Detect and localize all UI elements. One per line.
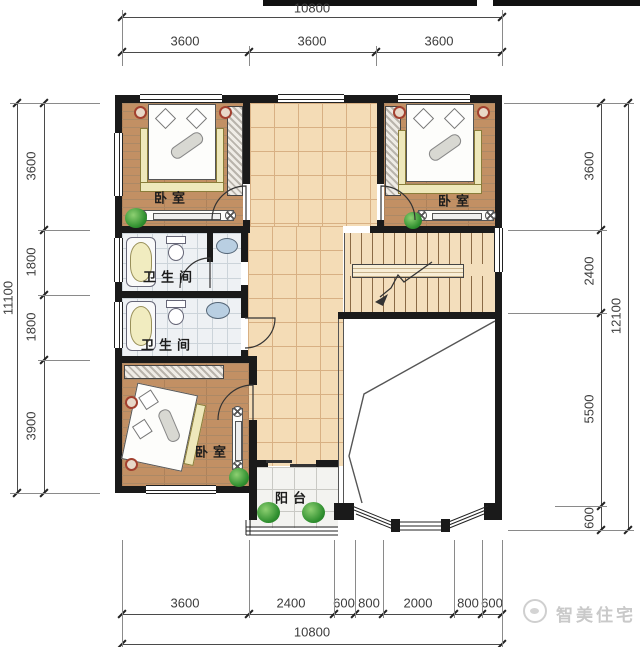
wall-bedroom1-right bbox=[243, 103, 250, 184]
window-bedroom1-west bbox=[114, 133, 123, 196]
blanket-roll bbox=[427, 132, 464, 163]
wall-balcony-top bbox=[316, 460, 338, 467]
dim-seg-right: 5500 bbox=[582, 395, 597, 424]
dim-extension bbox=[249, 540, 250, 618]
dim-extension bbox=[10, 493, 100, 494]
dim-extension bbox=[502, 540, 503, 647]
blanket-roll bbox=[157, 407, 182, 443]
dim-extension bbox=[502, 10, 503, 66]
dim-seg-top: 3600 bbox=[171, 34, 200, 49]
dim-extension bbox=[508, 313, 607, 314]
dim-line bbox=[17, 103, 18, 493]
wall-bedroom3-top bbox=[115, 356, 257, 363]
room-label-bedroom: 卧室 bbox=[195, 442, 231, 461]
plant bbox=[229, 468, 249, 487]
pillow bbox=[132, 419, 153, 440]
dim-seg-right: 2400 bbox=[582, 257, 597, 286]
dim-seg-right: 3600 bbox=[582, 152, 597, 181]
floor-plan-canvas: 卧室 卧室 卫生间 卫生间 卧室 阳台 10800 3600 3600 3600… bbox=[0, 0, 640, 647]
wall-row1-east bbox=[370, 226, 502, 233]
plant bbox=[404, 212, 422, 229]
wall-balcony-left bbox=[249, 467, 257, 520]
wall-bath1-inner bbox=[207, 233, 213, 262]
dim-total-right: 12100 bbox=[609, 298, 624, 334]
wardrobe bbox=[227, 106, 243, 196]
dresser bbox=[138, 210, 234, 221]
pillow bbox=[186, 108, 207, 129]
dim-total-left: 11100 bbox=[1, 281, 16, 315]
toilet bbox=[166, 236, 186, 244]
window-stairs-east bbox=[494, 228, 503, 272]
void-boundary-line bbox=[338, 319, 339, 503]
dresser-knob bbox=[225, 210, 236, 221]
dim-line bbox=[122, 17, 502, 18]
toilet bbox=[168, 244, 184, 261]
dim-seg-bottom: 2000 bbox=[404, 596, 433, 611]
bed-frame bbox=[398, 130, 406, 190]
dim-total-bottom: 10800 bbox=[294, 625, 330, 640]
blanket-roll bbox=[169, 130, 206, 161]
dim-extension bbox=[504, 103, 634, 104]
nightstand-lamp bbox=[125, 458, 138, 471]
dim-extension bbox=[508, 530, 634, 531]
room-label-bedroom: 卧室 bbox=[154, 188, 190, 207]
dresser bbox=[418, 210, 494, 221]
dim-seg-bottom: 800 bbox=[358, 596, 380, 611]
stair-treads-lower bbox=[350, 276, 490, 312]
dim-total-top: 10800 bbox=[294, 1, 330, 16]
bay-corner-left bbox=[334, 503, 354, 520]
nightstand-lamp bbox=[477, 106, 490, 119]
bed-frame bbox=[474, 130, 482, 190]
window-bedroom2-north bbox=[398, 94, 470, 103]
window-bedroom1-north bbox=[140, 94, 222, 103]
plant bbox=[125, 208, 147, 228]
room-label-bedroom: 卧室 bbox=[438, 191, 474, 210]
sink bbox=[206, 302, 230, 319]
dresser-knob bbox=[485, 210, 496, 221]
bay-window bbox=[352, 506, 398, 531]
dim-seg-left: 1800 bbox=[24, 313, 39, 342]
dim-extension bbox=[508, 230, 607, 231]
window-hall-north bbox=[278, 94, 344, 103]
hall-floor-lower bbox=[248, 226, 343, 466]
sink bbox=[216, 238, 238, 254]
dim-seg-left: 1800 bbox=[24, 248, 39, 277]
bed bbox=[406, 104, 474, 182]
nightstand-lamp bbox=[125, 396, 138, 409]
dim-seg-left: 3900 bbox=[24, 412, 39, 441]
dim-extension bbox=[122, 540, 123, 647]
toilet bbox=[168, 308, 184, 325]
dim-extension bbox=[38, 295, 90, 296]
brand-watermark: 智美住宅 bbox=[556, 601, 636, 626]
window-bath1-west bbox=[114, 238, 123, 282]
brand-logo-icon bbox=[523, 599, 547, 623]
dim-line bbox=[628, 103, 629, 530]
dim-seg-bottom: 2400 bbox=[277, 596, 306, 611]
toilet bbox=[166, 300, 186, 308]
dim-seg-top: 3600 bbox=[425, 34, 454, 49]
bed bbox=[148, 104, 216, 180]
dim-line bbox=[44, 103, 45, 493]
dresser-bar bbox=[235, 421, 242, 461]
balcony-sliding-door bbox=[266, 460, 292, 463]
dim-extension bbox=[383, 540, 384, 618]
nightstand-lamp bbox=[393, 106, 406, 119]
stair-handrail bbox=[352, 264, 464, 278]
dim-line bbox=[122, 614, 502, 615]
window-bath2-west bbox=[114, 302, 123, 348]
pillow bbox=[413, 108, 434, 129]
wall-stairs-bottom bbox=[338, 312, 502, 319]
nightstand-lamp bbox=[219, 106, 232, 119]
bay-window-mullion bbox=[391, 519, 400, 532]
wall-bedroom2-left bbox=[377, 103, 384, 184]
wall-right-exterior bbox=[495, 95, 502, 512]
hall-floor-upper bbox=[250, 103, 377, 226]
bay-window-mullion bbox=[441, 519, 450, 532]
bay-window bbox=[396, 522, 446, 530]
dim-seg-bottom: 800 bbox=[457, 596, 479, 611]
wardrobe bbox=[124, 365, 224, 379]
dim-seg-right: 600 bbox=[582, 507, 597, 529]
wall-bath2-east bbox=[241, 298, 248, 318]
bay-corner-right bbox=[484, 503, 502, 520]
dresser-knob bbox=[232, 406, 243, 417]
window-bedroom3-south bbox=[146, 485, 216, 494]
bed-frame bbox=[140, 128, 148, 188]
dim-seg-left: 3600 bbox=[24, 152, 39, 181]
dim-extension bbox=[10, 103, 100, 104]
void-boundary-line bbox=[343, 319, 344, 503]
pillow bbox=[444, 108, 465, 129]
dim-line bbox=[601, 103, 602, 530]
wall-bedroom3-right bbox=[249, 363, 257, 385]
dim-extension bbox=[122, 10, 123, 66]
wall-bath1-east bbox=[241, 233, 248, 262]
dim-line bbox=[122, 52, 502, 53]
dresser-bar bbox=[153, 213, 221, 220]
dim-extension bbox=[249, 46, 250, 66]
balcony-sliding-door bbox=[290, 464, 316, 467]
dim-seg-bottom: 3600 bbox=[171, 596, 200, 611]
dresser-bar bbox=[432, 213, 482, 220]
void-diagonal-line bbox=[349, 321, 495, 503]
dim-extension bbox=[38, 230, 90, 231]
dim-line bbox=[122, 644, 502, 645]
dim-extension bbox=[555, 506, 607, 507]
dim-extension bbox=[376, 46, 377, 66]
bay-window bbox=[442, 506, 488, 531]
pillow bbox=[155, 108, 176, 129]
stair-edge-line bbox=[344, 233, 345, 312]
dim-extension bbox=[482, 540, 483, 618]
stair-treads-upper bbox=[350, 233, 490, 264]
nightstand-lamp bbox=[134, 106, 147, 119]
dim-extension bbox=[38, 360, 90, 361]
bed-frame bbox=[216, 128, 224, 188]
dim-extension bbox=[355, 540, 356, 618]
wall-bath-divider bbox=[115, 291, 248, 298]
cropped-header-bar bbox=[493, 0, 640, 6]
room-label-balcony: 阳台 bbox=[275, 488, 311, 507]
room-label-bathroom: 卫生间 bbox=[141, 335, 195, 354]
room-label-bathroom: 卫生间 bbox=[143, 267, 197, 286]
dim-extension bbox=[454, 540, 455, 618]
dim-seg-top: 3600 bbox=[298, 34, 327, 49]
dim-extension bbox=[334, 540, 335, 618]
pillow bbox=[138, 389, 159, 410]
